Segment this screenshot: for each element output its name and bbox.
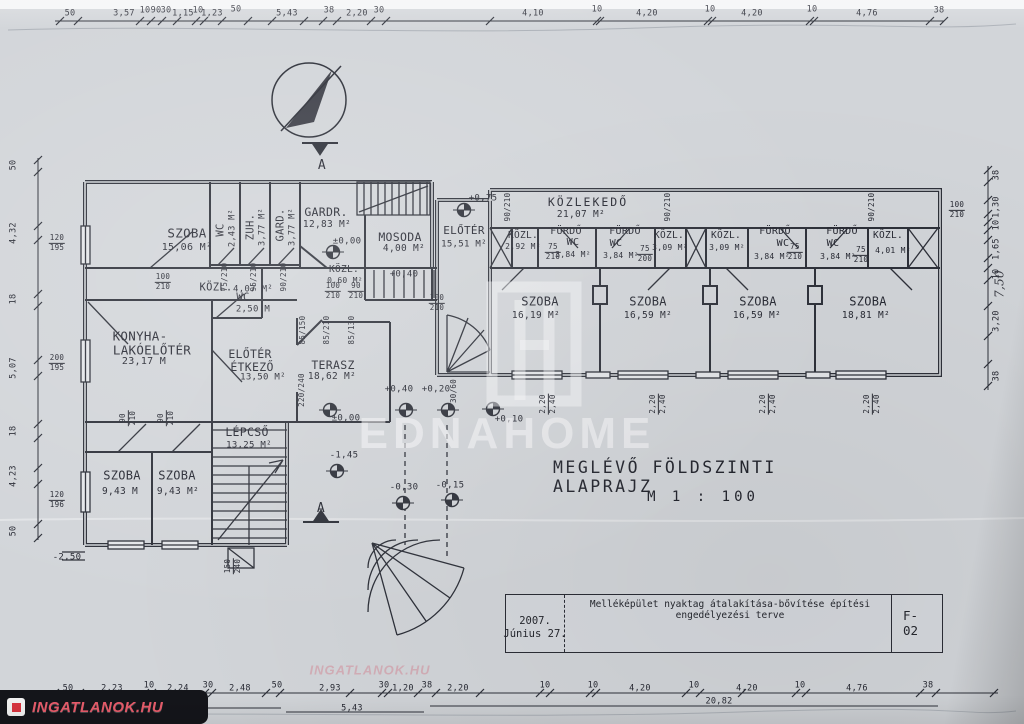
room-name-label: WC bbox=[827, 239, 840, 250]
opening-size-label: 95/210 bbox=[250, 263, 258, 292]
dimension-label: 1,15 bbox=[172, 10, 194, 19]
room-name-label: WC bbox=[567, 238, 580, 249]
dimension-label: 3,20 bbox=[993, 310, 1002, 332]
opening-size-label: 90/210 bbox=[280, 263, 288, 292]
dimension-label: 50 bbox=[10, 160, 19, 171]
dimension-label: 1,65 bbox=[993, 238, 1002, 260]
room-name-label: SZOBA bbox=[158, 470, 196, 483]
room-area-label: 16,19 M² bbox=[512, 311, 560, 321]
dimension-label: 18 bbox=[10, 426, 19, 437]
portal-logo-bar: INGATLANOK.HU bbox=[0, 690, 208, 724]
room-name-label: KÖZL. bbox=[873, 231, 903, 241]
opening-size-stack: 2,202,40 bbox=[759, 393, 777, 414]
opening-size-stack: 90210 bbox=[348, 282, 364, 300]
room-name-label: LAKÓELŐTÉR bbox=[113, 343, 191, 356]
opening-size-stack: 2,202,40 bbox=[863, 393, 881, 414]
room-area-label: 13,25 M² bbox=[226, 441, 272, 450]
portal-logo-icon bbox=[7, 698, 25, 716]
room-name-label: ÉTKEZŐ bbox=[230, 361, 273, 373]
room-name-label: ELŐTÉR bbox=[228, 348, 271, 360]
dimension-label: 50 bbox=[65, 10, 76, 19]
title-block-year: 2007. bbox=[519, 615, 551, 627]
dimension-label: 10 bbox=[592, 6, 603, 15]
dimension-label: 30 bbox=[203, 682, 214, 691]
dimension-label: 4,20 bbox=[629, 685, 651, 694]
room-area-label: 9,43 M bbox=[102, 487, 138, 497]
room-area-label: 3,09 M² bbox=[709, 244, 745, 252]
dimension-label: 1,30 bbox=[993, 196, 1002, 218]
dimension-label: 4,20 bbox=[741, 10, 763, 19]
dimension-label: 30 bbox=[374, 7, 385, 16]
room-name-label: GARD. bbox=[275, 208, 286, 241]
dimension-label: 4,76 bbox=[846, 685, 868, 694]
room-name-label: FÜRDŐ bbox=[609, 227, 641, 238]
room-area-label: 12,83 M² bbox=[303, 220, 351, 230]
opening-size-stack: 75210 bbox=[545, 243, 561, 261]
room-area-label: 4,01 M² bbox=[875, 247, 911, 255]
room-area-label: 3,84 M² bbox=[820, 253, 856, 261]
dimension-label: 38 bbox=[923, 682, 934, 691]
opening-size-stack: 90210 bbox=[157, 410, 175, 426]
room-name-label: KÖZL. bbox=[654, 231, 684, 241]
level-label: +0,40 bbox=[385, 385, 414, 394]
room-name-label: WC bbox=[236, 292, 249, 303]
opening-size-stack: 75210 bbox=[787, 243, 803, 261]
dimension-label: 10 bbox=[993, 220, 1002, 231]
title-block-description: Melléképület nyaktag átalakítása-bővítés… bbox=[568, 599, 892, 621]
dimension-label: 38 bbox=[934, 7, 945, 16]
room-name-label: TERASZ bbox=[311, 359, 354, 371]
room-area-label: 15,06 M² bbox=[162, 243, 213, 254]
room-name-label: KÖZL. bbox=[711, 231, 741, 241]
room-area-label: 16,59 M² bbox=[624, 311, 672, 321]
dimension-label: 10 bbox=[807, 6, 818, 15]
opening-size-stack: 200195 bbox=[49, 354, 65, 372]
room-name-label: ZUH. bbox=[245, 214, 256, 241]
level-label: +0,20 bbox=[422, 385, 451, 394]
level-label: -1,45 bbox=[330, 451, 359, 460]
dimension-label: 1,20 bbox=[392, 685, 414, 694]
opening-size-label: 85/210 bbox=[323, 316, 331, 345]
room-area-label: 3,84 M² bbox=[754, 253, 790, 261]
room-name-label: SZOBA bbox=[103, 470, 141, 483]
opening-size-stack: 100210 bbox=[949, 201, 965, 219]
opening-size-label: 75/210 bbox=[221, 263, 229, 292]
dimension-label: 5,07 bbox=[10, 357, 19, 379]
room-name-label: SZOBA bbox=[849, 296, 887, 309]
dimension-label: 10 bbox=[705, 6, 716, 15]
opening-size-stack: 90210 bbox=[119, 410, 137, 426]
room-name-label: SZOBA bbox=[739, 296, 777, 309]
title-block-divider bbox=[891, 595, 892, 652]
room-area-label: 15,51 M² bbox=[441, 240, 487, 249]
room-area-label: 3,09 M² bbox=[652, 244, 688, 252]
opening-size-stack: 75210 bbox=[853, 246, 869, 264]
portal-logo-text: INGATLANOK.HU bbox=[32, 699, 163, 716]
portal-logo-dot bbox=[12, 703, 21, 712]
dimension-label: 2,20 bbox=[447, 685, 469, 694]
sheet-number: F-02 bbox=[903, 608, 929, 638]
room-name-label: WC bbox=[215, 223, 226, 236]
opening-size-stack: 100210 bbox=[325, 282, 341, 300]
room-area-label: 3,77 M² bbox=[259, 208, 268, 246]
dimension-label: 38 bbox=[324, 7, 335, 16]
opening-size-label: 90/210 bbox=[868, 193, 876, 222]
floor-plan-photo: SZOBA15,06 M²WC2,43 M²ZUH.3,77 M²GARD.3,… bbox=[0, 0, 1024, 724]
dimension-label: 10 bbox=[140, 7, 151, 16]
level-label: -0,15 bbox=[436, 481, 465, 490]
opening-size-label: 30/60 bbox=[450, 379, 458, 403]
opening-size-label: 90/210 bbox=[504, 193, 512, 222]
room-area-label: 13,50 M² bbox=[240, 373, 286, 382]
opening-size-stack: 120195 bbox=[49, 234, 65, 252]
level-label: +0,75 bbox=[469, 194, 498, 203]
dimension-label: 10 bbox=[540, 682, 551, 691]
room-name-label: KÖZL. bbox=[508, 231, 538, 241]
opening-size-label: 90/210 bbox=[664, 193, 672, 222]
dimension-label: 10 bbox=[588, 682, 599, 691]
dimension-label: 4,23 bbox=[10, 465, 19, 487]
dimension-label: 4,20 bbox=[736, 685, 758, 694]
room-name-label: SZOBA bbox=[629, 296, 667, 309]
title-block: Melléképület nyaktag átalakítása-bővítés… bbox=[505, 594, 943, 653]
opening-size-label: 85/130 bbox=[348, 316, 356, 345]
watermark-ghost-text: INGATLANOK.HU bbox=[309, 663, 430, 678]
level-label: +0,40 bbox=[390, 270, 419, 279]
north-arrow-icon bbox=[272, 63, 346, 137]
dimension-label: 5,43 bbox=[276, 10, 298, 19]
dimension-label: 30 bbox=[161, 7, 172, 16]
room-name-label: KÖZL. bbox=[329, 265, 359, 275]
dimension-label: 18 bbox=[10, 294, 19, 305]
dimension-label: 1,23 bbox=[201, 10, 223, 19]
room-name-label: FÜRDŐ bbox=[759, 227, 791, 238]
level-label: ±0,00 bbox=[332, 414, 361, 423]
chimney-blocks bbox=[593, 286, 822, 304]
opening-size-stack: 120196 bbox=[49, 491, 65, 509]
dimension-label: 30 bbox=[379, 682, 390, 691]
dimension-label: 4,20 bbox=[636, 10, 658, 19]
dimension-label: 3,57 bbox=[113, 10, 135, 19]
room-area-label: 18,81 M² bbox=[842, 311, 890, 321]
room-name-label: LÉPCSŐ bbox=[225, 426, 268, 438]
dimension-label: 38 bbox=[422, 682, 433, 691]
opening-size-stack: 100210 bbox=[429, 294, 445, 312]
room-area-label: 16,59 M² bbox=[733, 311, 781, 321]
watermark-text: EDNAHOME bbox=[359, 409, 656, 459]
room-name-label: WC bbox=[610, 239, 623, 250]
level-label: ±0,00 bbox=[333, 237, 362, 246]
level-label: -0,30 bbox=[390, 483, 419, 492]
room-area-label: 2,92 M² bbox=[505, 243, 541, 251]
room-name-label: FÜRDŐ bbox=[826, 227, 858, 238]
dimension-label: 50 bbox=[231, 6, 242, 15]
opening-size-stack: 150240 bbox=[224, 558, 242, 574]
dimension-label: 2,20 bbox=[346, 10, 368, 19]
dimension-label: 2,48 bbox=[229, 685, 251, 694]
window-symbols bbox=[81, 226, 886, 549]
dimension-label: 20,82 bbox=[705, 698, 732, 707]
room-area-label: 18,62 M² bbox=[308, 372, 356, 382]
opening-size-stack: 75200 bbox=[637, 245, 653, 263]
dimension-label: 50 bbox=[272, 682, 283, 691]
room-area-label: 9,43 M² bbox=[157, 487, 199, 497]
opening-size-label: 85/150 bbox=[299, 316, 307, 345]
room-name-label: SZOBA bbox=[521, 296, 559, 309]
room-name-label: KÖZLEKEDŐ bbox=[548, 196, 628, 208]
room-area-label: 3,84 M² bbox=[603, 252, 639, 260]
dimension-label: 50 bbox=[10, 526, 19, 537]
room-name-label: GARDR. bbox=[304, 206, 347, 218]
level-label: -2,50 bbox=[53, 553, 82, 562]
dimension-label: 4,10 bbox=[522, 10, 544, 19]
drawing-scale: M 1 : 100 bbox=[647, 489, 759, 505]
dimension-label: 7,50 bbox=[994, 270, 1007, 298]
dimension-label: 10 bbox=[689, 682, 700, 691]
room-name-label: SZOBA bbox=[167, 226, 206, 239]
section-letter-label: A bbox=[317, 502, 325, 516]
dimension-label: 5,43 bbox=[341, 705, 363, 714]
opening-size-stack: 100210 bbox=[155, 273, 171, 291]
title-block-date: Június 27. bbox=[503, 628, 566, 640]
room-area-label: 4,00 M² bbox=[383, 244, 425, 254]
room-name-label: FÜRDŐ bbox=[550, 227, 582, 238]
room-area-label: 21,07 M² bbox=[557, 210, 605, 220]
dimension-label: 4,32 bbox=[10, 222, 19, 244]
dimension-label: 38 bbox=[993, 371, 1002, 382]
dimension-label: 10 bbox=[795, 682, 806, 691]
room-name-label: ELŐTÉR bbox=[443, 225, 485, 237]
dimension-label: 38 bbox=[993, 170, 1002, 181]
room-name-label: KONYHA- bbox=[113, 329, 168, 342]
room-area-label: 2,43 M² bbox=[229, 209, 238, 247]
room-name-label: MOSODA bbox=[378, 231, 421, 243]
dimension-label: 2,93 bbox=[319, 685, 341, 694]
room-area-label: 2,50 M bbox=[236, 305, 270, 314]
room-area-label: 23,17 M bbox=[122, 357, 166, 368]
room-area-label: 3,77 M² bbox=[289, 208, 298, 246]
opening-size-label: 220/240 bbox=[298, 373, 306, 407]
dimension-label: 4,76 bbox=[856, 10, 878, 19]
section-letter-label: A bbox=[318, 159, 326, 173]
